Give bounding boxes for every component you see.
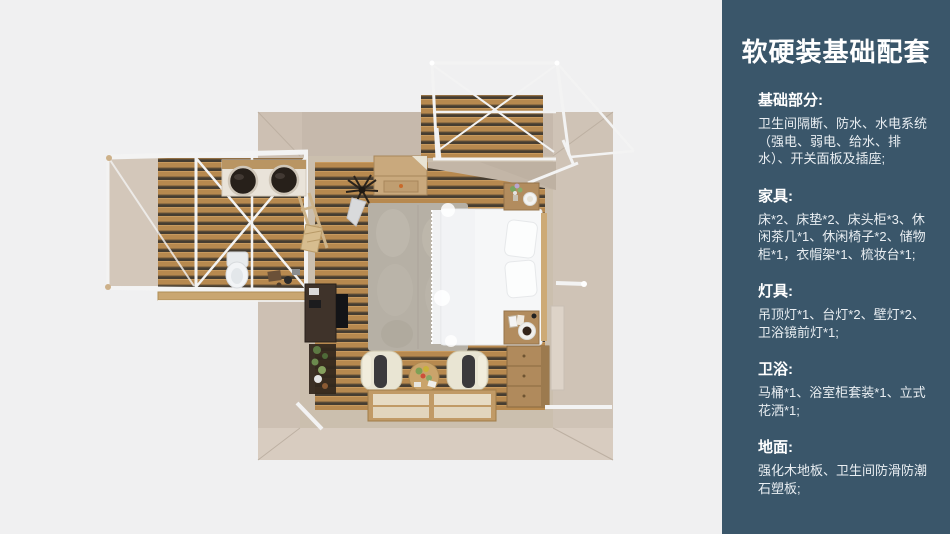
panel-title: 软硬装基础配套 <box>740 36 932 68</box>
section-bathroom: 卫浴: 马桶*1、浴室柜套装*1、立式花洒*1; <box>740 361 932 419</box>
section-flooring: 地面: 强化木地板、卫生间防滑防潮石塑板; <box>740 439 932 497</box>
vanity-sinks <box>222 160 306 196</box>
bathroom-sill <box>158 292 305 300</box>
section-heading: 家具: <box>758 188 930 206</box>
plant-shelf <box>309 344 336 394</box>
headboard <box>541 213 547 341</box>
nightstand-top <box>504 183 539 210</box>
armchair-left <box>361 351 402 391</box>
tv <box>336 294 348 328</box>
sheer-fluff <box>434 290 450 306</box>
info-panel: 软硬装基础配套 基础部分: 卫生间隔断、防水、水电系统（强电、弱电、给水、排水）… <box>722 0 950 534</box>
section-heading: 基础部分: <box>758 92 930 110</box>
storage-cabinet <box>374 156 427 195</box>
sink-basin-left <box>229 167 257 195</box>
section-body: 卫生间隔断、防水、水电系统（强电、弱电、给水、排水）、开关面板及插座; <box>758 115 930 168</box>
floorplan-render <box>0 0 722 534</box>
section-body: 马桶*1、浴室柜套装*1、立式花洒*1; <box>758 384 930 419</box>
tea-table <box>409 362 439 392</box>
sheer-fluff <box>441 203 455 217</box>
sheer-fluff <box>445 335 457 347</box>
armchair-right <box>447 351 488 391</box>
section-body: 床*2、床垫*2、床头柜*3、休闲茶几*1、休闲椅子*2、储物柜*1，衣帽架*1… <box>758 211 930 264</box>
pillow <box>504 260 537 298</box>
door-leaf <box>551 306 564 390</box>
section-lighting: 灯具: 吊顶灯*1、台灯*2、壁灯*2、卫浴镜前灯*1; <box>740 283 932 341</box>
section-furniture: 家具: 床*2、床垫*2、床头柜*3、休闲茶几*1、休闲椅子*2、储物柜*1，衣… <box>740 188 932 264</box>
section-heading: 灯具: <box>758 283 930 301</box>
section-body: 吊顶灯*1、台灯*2、壁灯*2、卫浴镜前灯*1; <box>758 306 930 341</box>
toilet <box>226 252 248 288</box>
section-basics: 基础部分: 卫生间隔断、防水、水电系统（强电、弱电、给水、排水）、开关面板及插座… <box>740 92 932 168</box>
nightstand-bottom <box>504 311 539 344</box>
page: 软硬装基础配套 基础部分: 卫生间隔断、防水、水电系统（强电、弱电、给水、排水）… <box>0 0 950 534</box>
bathroom <box>105 150 308 301</box>
bed-blanket-fringe <box>432 210 441 344</box>
chest-of-drawers <box>507 346 549 407</box>
section-heading: 卫浴: <box>758 361 930 379</box>
sink-basin-right <box>270 166 298 194</box>
section-body: 强化木地板、卫生间防滑防潮石塑板; <box>758 462 930 497</box>
tatami-mats <box>368 390 496 421</box>
pillow <box>504 219 538 258</box>
section-heading: 地面: <box>758 439 930 457</box>
